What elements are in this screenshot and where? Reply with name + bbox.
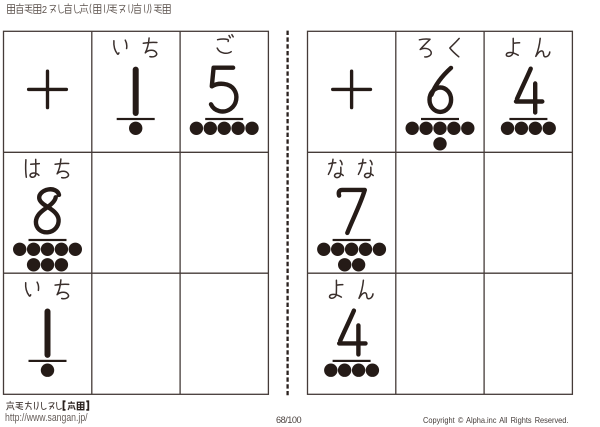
svg-text:2: 2 [42,5,47,16]
